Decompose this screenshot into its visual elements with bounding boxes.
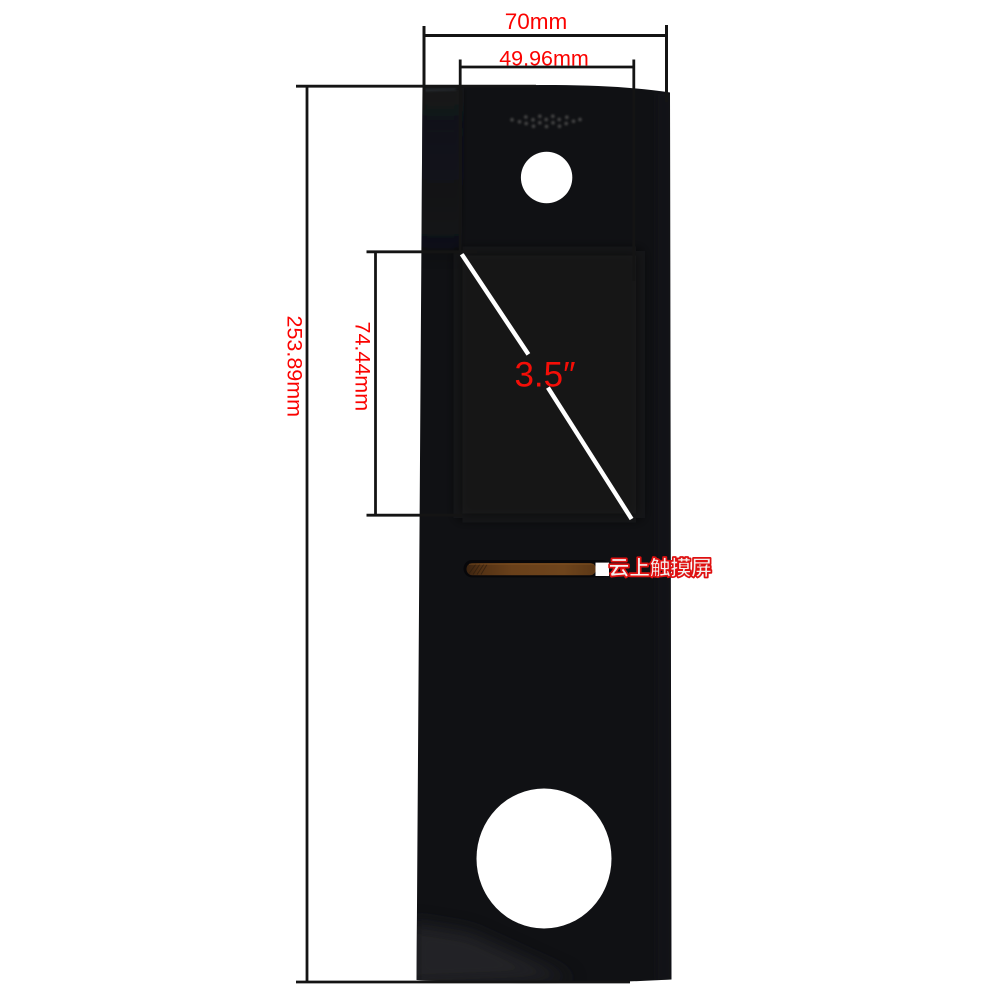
svg-text:3.5″: 3.5″ (514, 356, 575, 395)
svg-text:70mm: 70mm (505, 9, 568, 34)
svg-text:253.89mm: 253.89mm (283, 316, 307, 418)
svg-text:74.44mm: 74.44mm (351, 322, 375, 412)
svg-text:49.96mm: 49.96mm (499, 47, 589, 71)
